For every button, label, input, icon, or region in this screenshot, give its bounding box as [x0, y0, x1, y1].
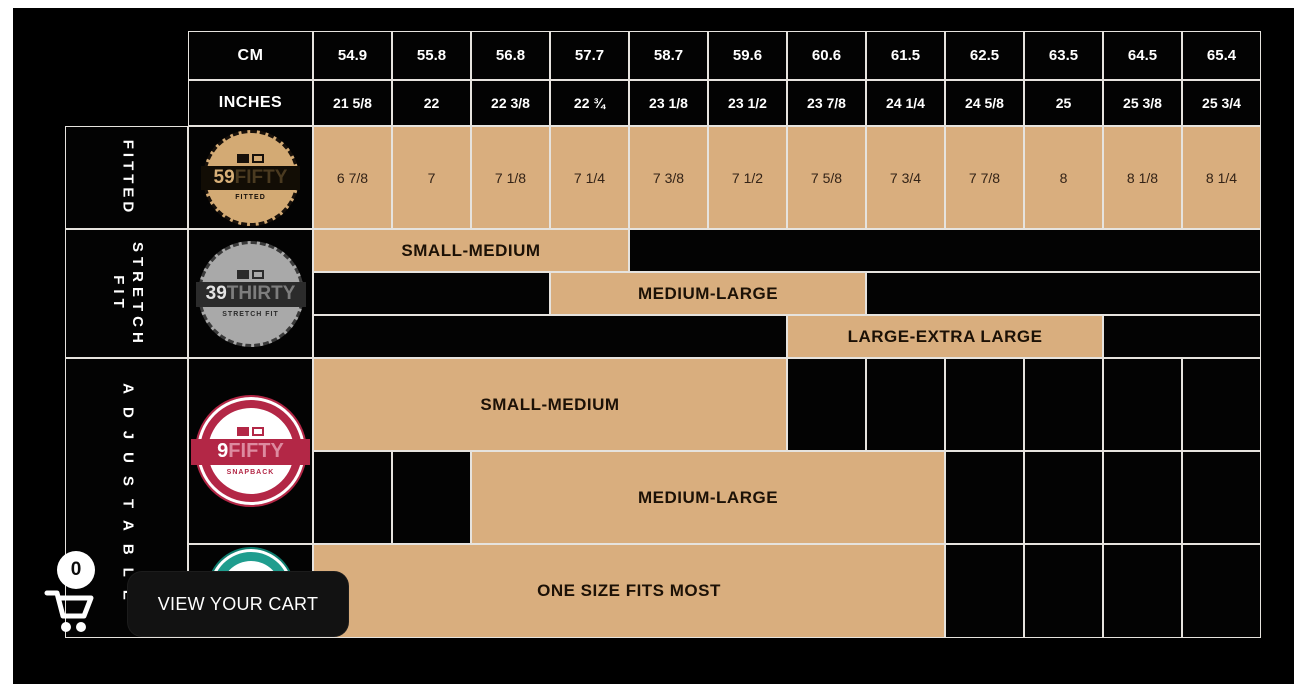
empty-cell — [313, 451, 392, 544]
cm-value-cell: 56.8 — [471, 31, 550, 80]
cm-value-cell: 55.8 — [392, 31, 471, 80]
empty-cell — [1024, 451, 1103, 544]
fitted-row-label-cell: FITTED — [65, 126, 188, 229]
empty-cell — [787, 358, 866, 451]
stretch-large-extra-large-bar: LARGE-EXTRA LARGE — [787, 315, 1103, 358]
inches-value-cell: 22 3/8 — [471, 80, 550, 126]
empty-cell — [1182, 451, 1261, 544]
view-cart-button[interactable]: VIEW YOUR CART — [128, 572, 348, 636]
39thirty-badge-icon: 39THIRTY STRETCH FIT — [198, 241, 304, 347]
fitted-size-cell: 7 7/8 — [945, 126, 1024, 229]
badge-subtitle: FITTED — [235, 194, 266, 201]
inches-value-cell: 22 — [392, 80, 471, 126]
badge-subtitle: SNAPBACK — [227, 469, 275, 476]
bar-label: LARGE-EXTRA LARGE — [848, 327, 1043, 347]
9fifty-badge-icon: 9FIFTY SNAPBACK — [195, 395, 307, 507]
empty-cell — [1103, 544, 1182, 638]
bar-label: SMALL-MEDIUM — [401, 241, 540, 261]
bar-label: ONE SIZE FITS MOST — [537, 581, 721, 601]
empty-cell — [1103, 358, 1182, 451]
stretch-small-medium-bar: SMALL-MEDIUM — [313, 229, 629, 272]
empty-cell — [866, 358, 945, 451]
fitted-size-cell: 8 — [1024, 126, 1103, 229]
one-size-fits-most-bar: ONE SIZE FITS MOST — [313, 544, 945, 638]
adjustable-badge-cell: 9FIFTY SNAPBACK — [188, 358, 313, 544]
fitted-size-cell: 8 1/8 — [1103, 126, 1182, 229]
cart-count-badge: 0 — [57, 551, 95, 589]
badge-brand-word: FIFTY — [228, 440, 284, 463]
fitted-row-label: FITTED — [117, 126, 136, 229]
adjustable-small-medium-bar: SMALL-MEDIUM — [313, 358, 787, 451]
empty-cell — [1103, 451, 1182, 544]
badge-brand-word: FIFTY — [235, 167, 288, 189]
cm-value-cell: 64.5 — [1103, 31, 1182, 80]
bar-label: SMALL-MEDIUM — [480, 395, 619, 415]
empty-cell — [629, 229, 1261, 272]
fitted-size-cell: 7 3/8 — [629, 126, 708, 229]
size-chart-grid: CM INCHES FITTED 59FIFTY FITTED — [65, 31, 1261, 638]
inches-value-cell: 23 1/2 — [708, 80, 787, 126]
stretch-fit-row-label-cell: STRETCH FIT — [65, 229, 188, 358]
inches-value-cell: 25 3/4 — [1182, 80, 1261, 126]
new-era-flag-icon — [237, 270, 264, 279]
badge-brand-number: 59 — [214, 167, 235, 189]
inches-value-cell: 24 1/4 — [866, 80, 945, 126]
stretch-medium-large-bar: MEDIUM-LARGE — [550, 272, 866, 315]
stretch-fit-row-label: STRETCH FIT — [108, 242, 146, 346]
badge-brand-number: 39 — [206, 283, 227, 305]
fitted-size-cell: 7 3/4 — [866, 126, 945, 229]
cm-value-cell: 61.5 — [866, 31, 945, 80]
cm-header-cell: CM — [188, 31, 313, 80]
cm-value-cell: 58.7 — [629, 31, 708, 80]
adjustable-medium-large-bar: MEDIUM-LARGE — [471, 451, 945, 544]
fitted-size-cell: 6 7/8 — [313, 126, 392, 229]
fitted-size-cell: 8 1/4 — [1182, 126, 1261, 229]
inches-value-cell: 22 ¾ — [550, 80, 629, 126]
view-cart-button-label: VIEW YOUR CART — [158, 594, 319, 615]
empty-cell — [392, 451, 471, 544]
inches-value-cell: 23 1/8 — [629, 80, 708, 126]
inches-value-cell: 23 7/8 — [787, 80, 866, 126]
cm-value-cell: 62.5 — [945, 31, 1024, 80]
badge-brand-number: 9 — [217, 440, 228, 463]
empty-cell — [1103, 315, 1261, 358]
empty-cell — [945, 358, 1024, 451]
fitted-size-cell: 7 5/8 — [787, 126, 866, 229]
bar-label: MEDIUM-LARGE — [638, 284, 778, 304]
inches-header-cell: INCHES — [188, 80, 313, 126]
inches-value-cell: 21 5/8 — [313, 80, 392, 126]
fitted-size-cell: 7 1/4 — [550, 126, 629, 229]
new-era-flag-icon — [237, 154, 264, 163]
empty-cell — [313, 315, 787, 358]
empty-cell — [1024, 358, 1103, 451]
stretch-fit-badge-cell: 39THIRTY STRETCH FIT — [188, 229, 313, 358]
cart-icon[interactable] — [43, 586, 97, 638]
cm-value-cell: 63.5 — [1024, 31, 1103, 80]
badge-subtitle: STRETCH FIT — [222, 311, 279, 318]
empty-cell — [866, 272, 1261, 315]
bar-label: MEDIUM-LARGE — [638, 488, 778, 508]
cm-value-cell: 60.6 — [787, 31, 866, 80]
size-chart-page: CM INCHES FITTED 59FIFTY FITTED — [0, 0, 1307, 695]
fitted-size-cell: 7 1/2 — [708, 126, 787, 229]
empty-cell — [313, 272, 550, 315]
cm-value-cell: 57.7 — [550, 31, 629, 80]
inches-value-cell: 24 5/8 — [945, 80, 1024, 126]
cm-value-cell: 59.6 — [708, 31, 787, 80]
59fifty-badge-icon: 59FIFTY FITTED — [203, 130, 299, 226]
new-era-flag-icon — [237, 427, 264, 436]
empty-cell — [945, 544, 1024, 638]
cm-value-cell: 54.9 — [313, 31, 392, 80]
cm-value-cell: 65.4 — [1182, 31, 1261, 80]
empty-cell — [945, 451, 1024, 544]
empty-cell — [1182, 358, 1261, 451]
empty-cell — [1024, 544, 1103, 638]
fitted-badge-cell: 59FIFTY FITTED — [188, 126, 313, 229]
fitted-size-cell: 7 1/8 — [471, 126, 550, 229]
fitted-size-cell: 7 — [392, 126, 471, 229]
inches-value-cell: 25 — [1024, 80, 1103, 126]
inches-value-cell: 25 3/8 — [1103, 80, 1182, 126]
badge-brand-word: THIRTY — [227, 283, 296, 305]
empty-cell — [1182, 544, 1261, 638]
